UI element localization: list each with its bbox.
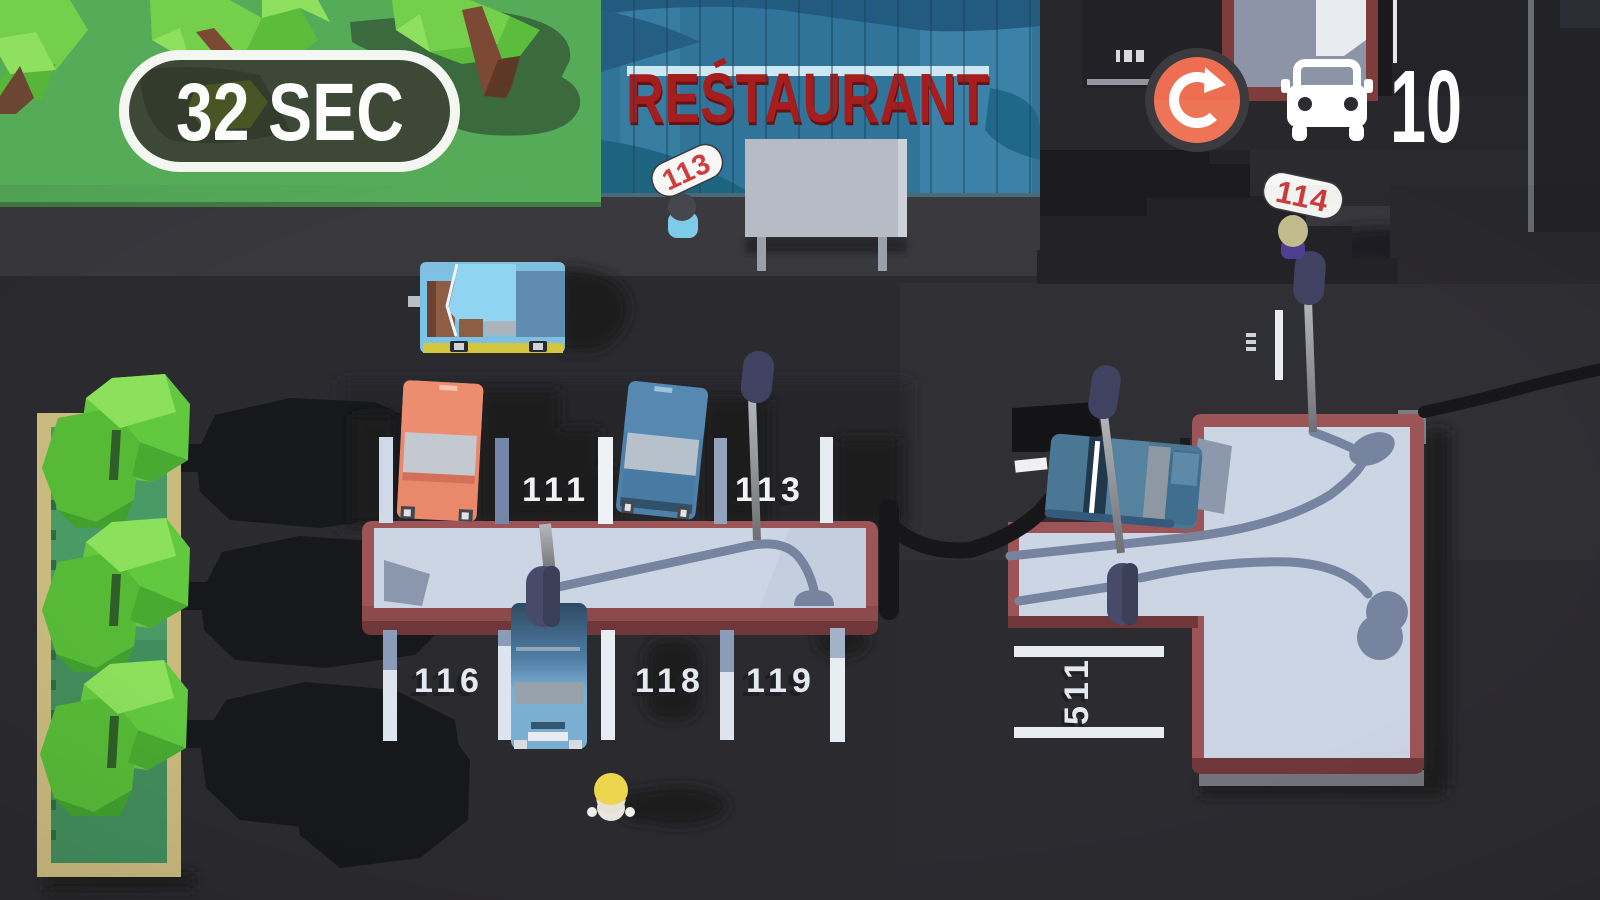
- svg-text:10: 10: [1390, 49, 1462, 164]
- svg-text:32 SEC: 32 SEC: [176, 67, 404, 158]
- svg-text:RESTAURANT: RESTAURANT: [626, 59, 989, 137]
